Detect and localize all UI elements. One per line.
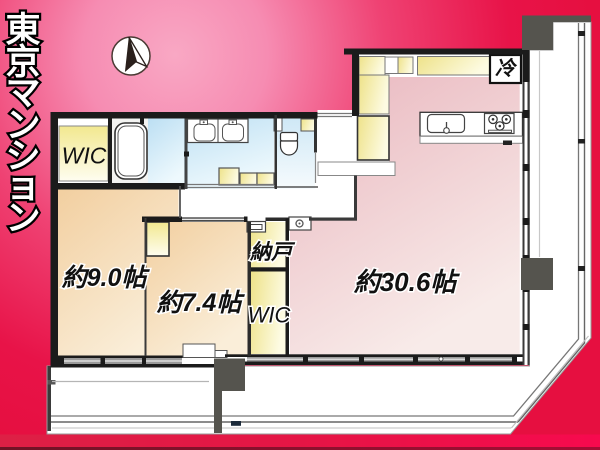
svg-text:冷: 冷: [495, 57, 518, 80]
svg-text:約9.0帖: 約9.0帖: [62, 264, 151, 292]
svg-text:約30.6帖: 約30.6帖: [354, 267, 461, 297]
svg-text:ン: ン: [5, 199, 40, 238]
svg-text:納戸: 納戸: [249, 240, 296, 264]
svg-text:約7.4帖: 約7.4帖: [157, 289, 246, 317]
svg-text:WIC: WIC: [62, 143, 107, 169]
svg-text:WIC: WIC: [248, 303, 291, 328]
